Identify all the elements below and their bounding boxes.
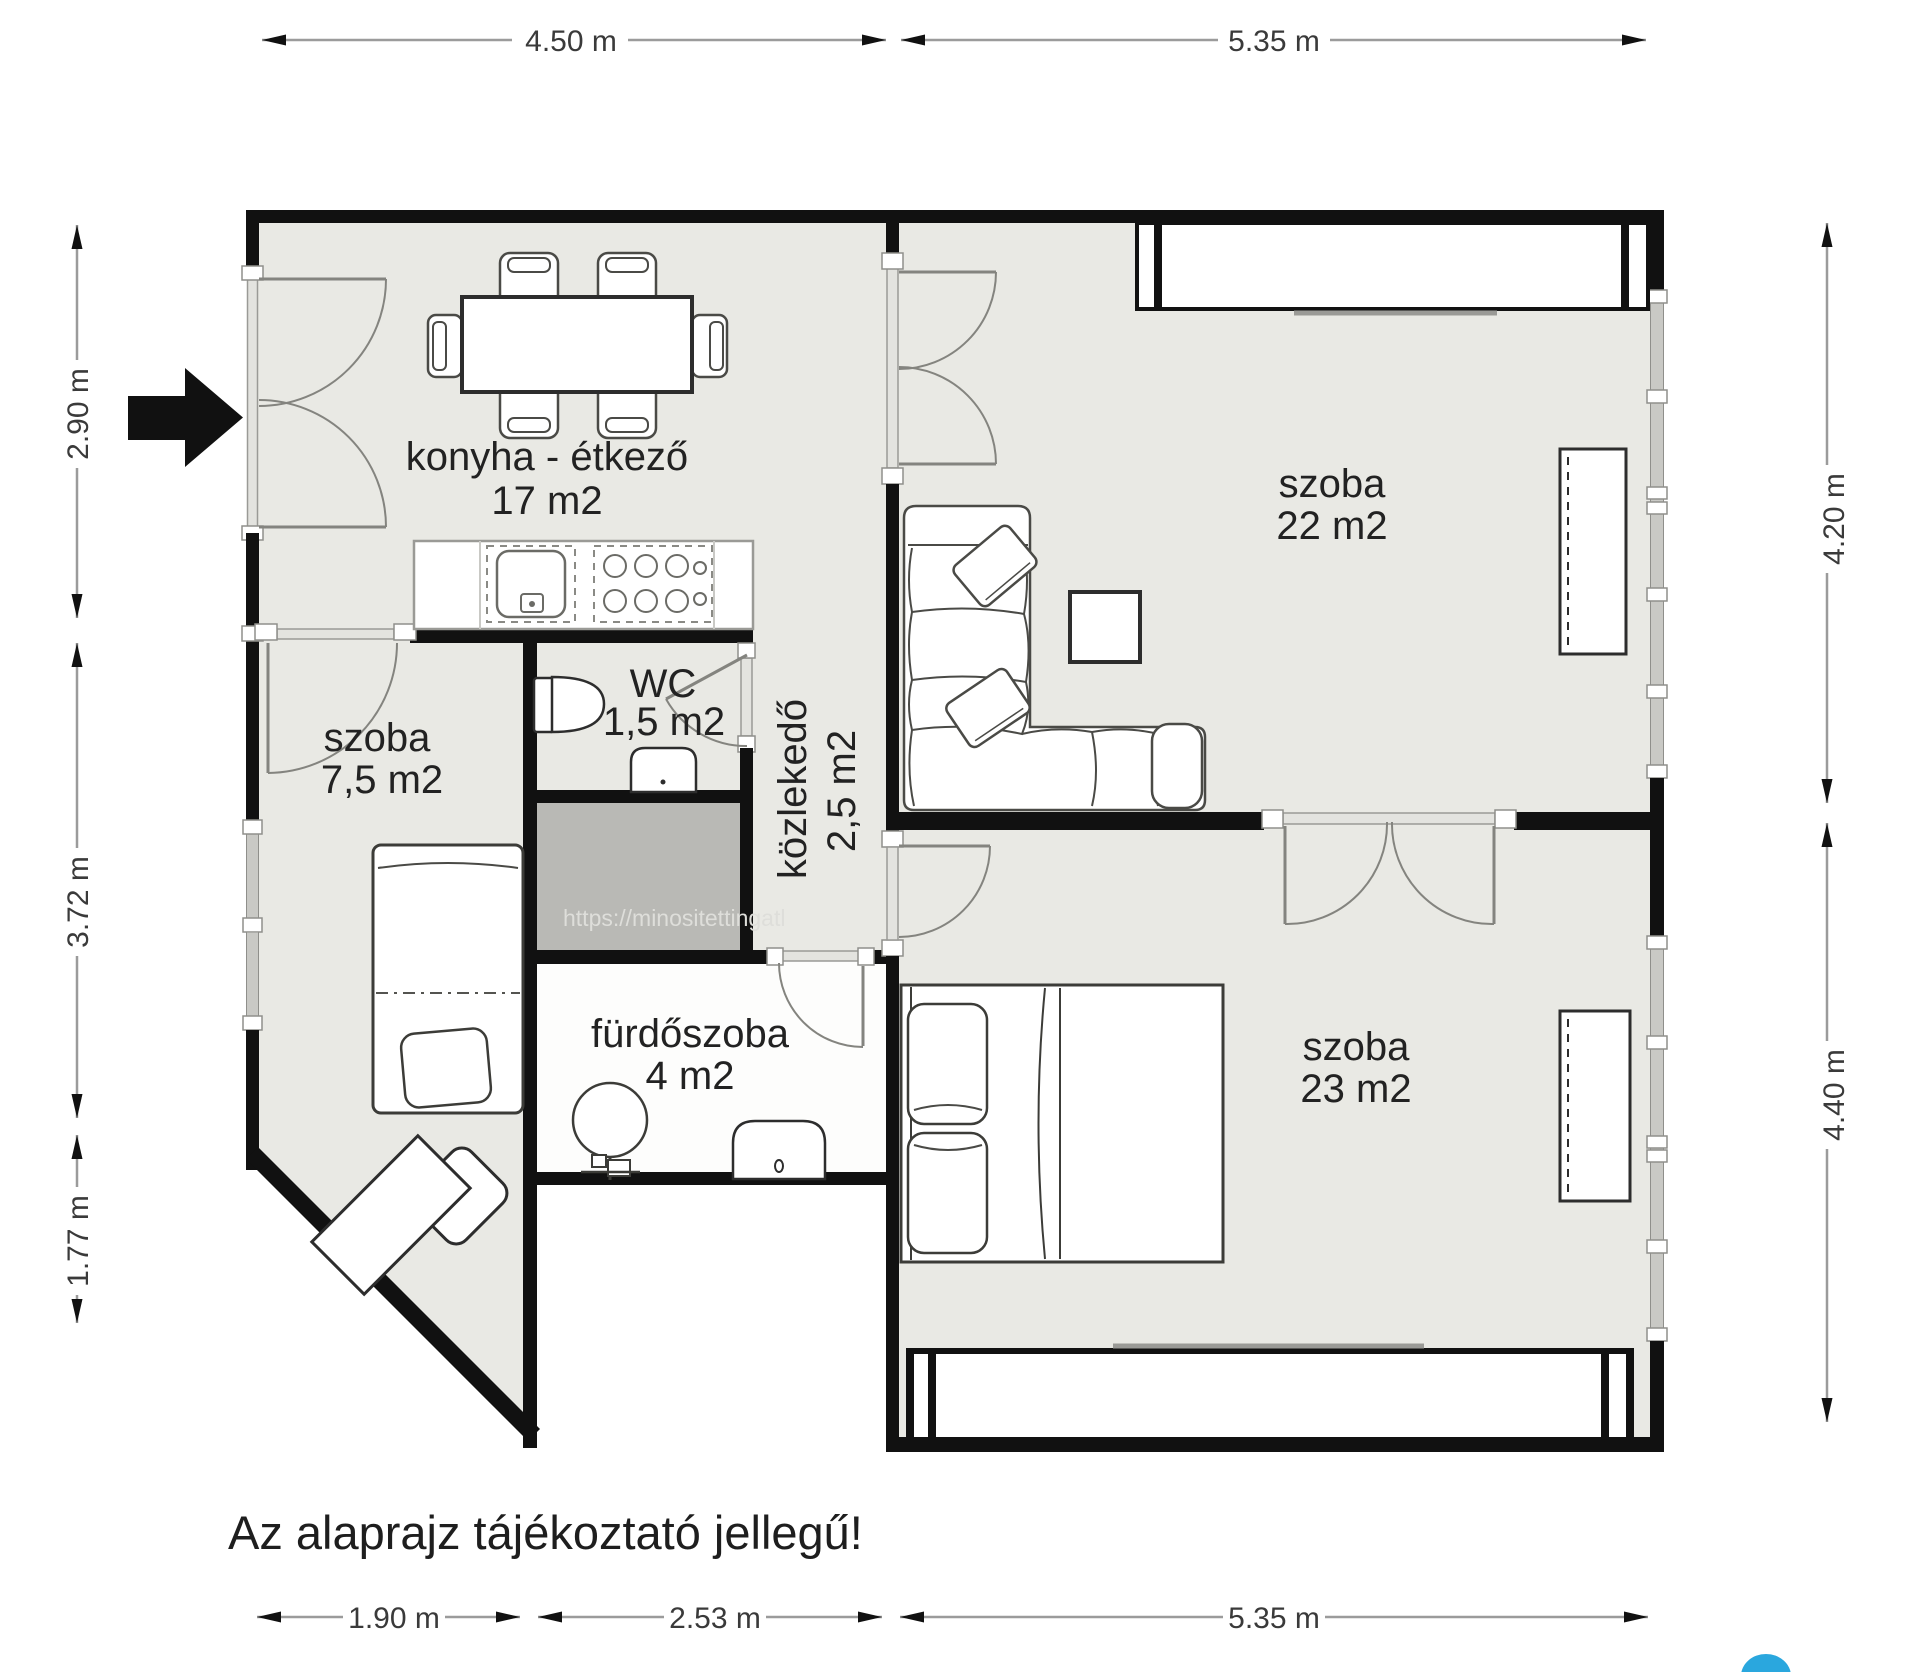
svg-text:1.90 m: 1.90 m <box>348 1602 440 1635</box>
svg-text:5.35 m: 5.35 m <box>1228 25 1320 58</box>
svg-text:17 m2: 17 m2 <box>491 479 602 523</box>
svg-text:Az alaprajz tájékoztató jelleg: Az alaprajz tájékoztató jellegű! <box>228 1506 863 1559</box>
svg-text:4 m2: 4 m2 <box>646 1054 735 1098</box>
svg-text:4.50 m: 4.50 m <box>525 25 617 58</box>
svg-text:szoba: szoba <box>324 716 431 760</box>
svg-text:fürdőszoba: fürdőszoba <box>591 1012 790 1056</box>
svg-text:23 m2: 23 m2 <box>1300 1067 1411 1111</box>
svg-text:2.53 m: 2.53 m <box>669 1602 761 1635</box>
svg-text:közlekedő: közlekedő <box>771 699 815 879</box>
svg-text:1.77 m: 1.77 m <box>62 1195 95 1287</box>
svg-text:https://minositettingatl: https://minositettingatl <box>563 905 785 931</box>
svg-text:5.35 m: 5.35 m <box>1228 1602 1320 1635</box>
svg-text:konyha - étkező: konyha - étkező <box>406 435 688 479</box>
svg-text:szoba: szoba <box>1303 1025 1410 1069</box>
svg-text:7,5 m2: 7,5 m2 <box>321 758 443 802</box>
svg-text:3.72 m: 3.72 m <box>62 856 95 948</box>
svg-text:szoba: szoba <box>1279 462 1386 506</box>
svg-text:22 m2: 22 m2 <box>1276 504 1387 548</box>
svg-text:1,5 m2: 1,5 m2 <box>603 700 725 744</box>
svg-text:4.20 m: 4.20 m <box>1818 473 1851 565</box>
svg-text:2.90 m: 2.90 m <box>62 368 95 460</box>
svg-text:4.40 m: 4.40 m <box>1818 1049 1851 1141</box>
svg-text:2,5 m2: 2,5 m2 <box>820 730 864 852</box>
